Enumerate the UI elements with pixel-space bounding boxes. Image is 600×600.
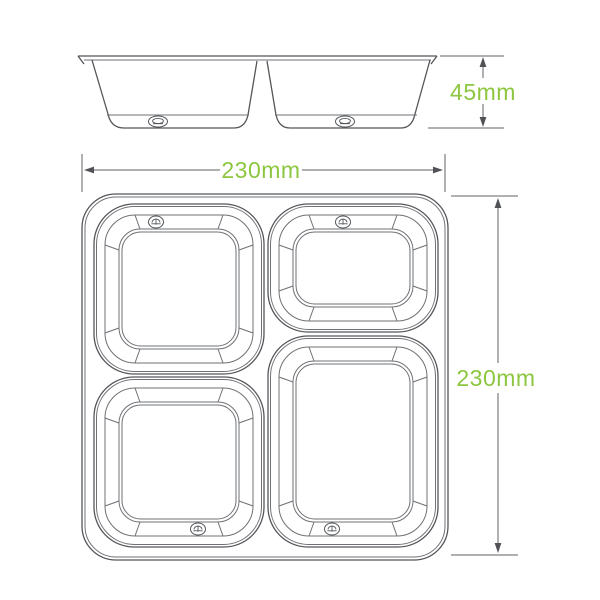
compartment-bottom-right [268,336,438,547]
emboss-icon [149,116,168,127]
compartment-bottom-left [94,377,264,547]
compartment-top-right [268,204,438,332]
arrow-right-icon [433,167,443,174]
dimension-length: 230mm [451,196,536,555]
emboss-icon [336,116,355,127]
side-view [78,56,437,128]
top-view [82,194,448,560]
emboss-icon [336,216,351,228]
side-view-left-compartment [92,60,257,128]
arrow-down-icon [480,117,487,127]
compartment-top-left [94,204,264,374]
arrow-up-icon [495,198,502,208]
emboss-icon [325,523,340,535]
side-view-right-compartment [267,60,430,128]
emboss-icon [149,216,164,228]
arrow-left-icon [84,167,94,174]
dimension-drawing-canvas: 45mm 230mm [0,0,600,600]
emboss-icon [191,523,206,535]
height-dimension-label: 45mm [450,79,516,105]
arrow-down-icon [495,543,502,553]
width-dimension-label: 230mm [221,157,300,183]
dimension-height: 45mm [428,56,516,128]
tray-dimension-diagram: 45mm 230mm [0,0,600,600]
length-dimension-label: 230mm [456,365,535,391]
side-view-rim [78,56,437,64]
arrow-up-icon [480,57,487,67]
dimension-width: 230mm [82,154,445,192]
